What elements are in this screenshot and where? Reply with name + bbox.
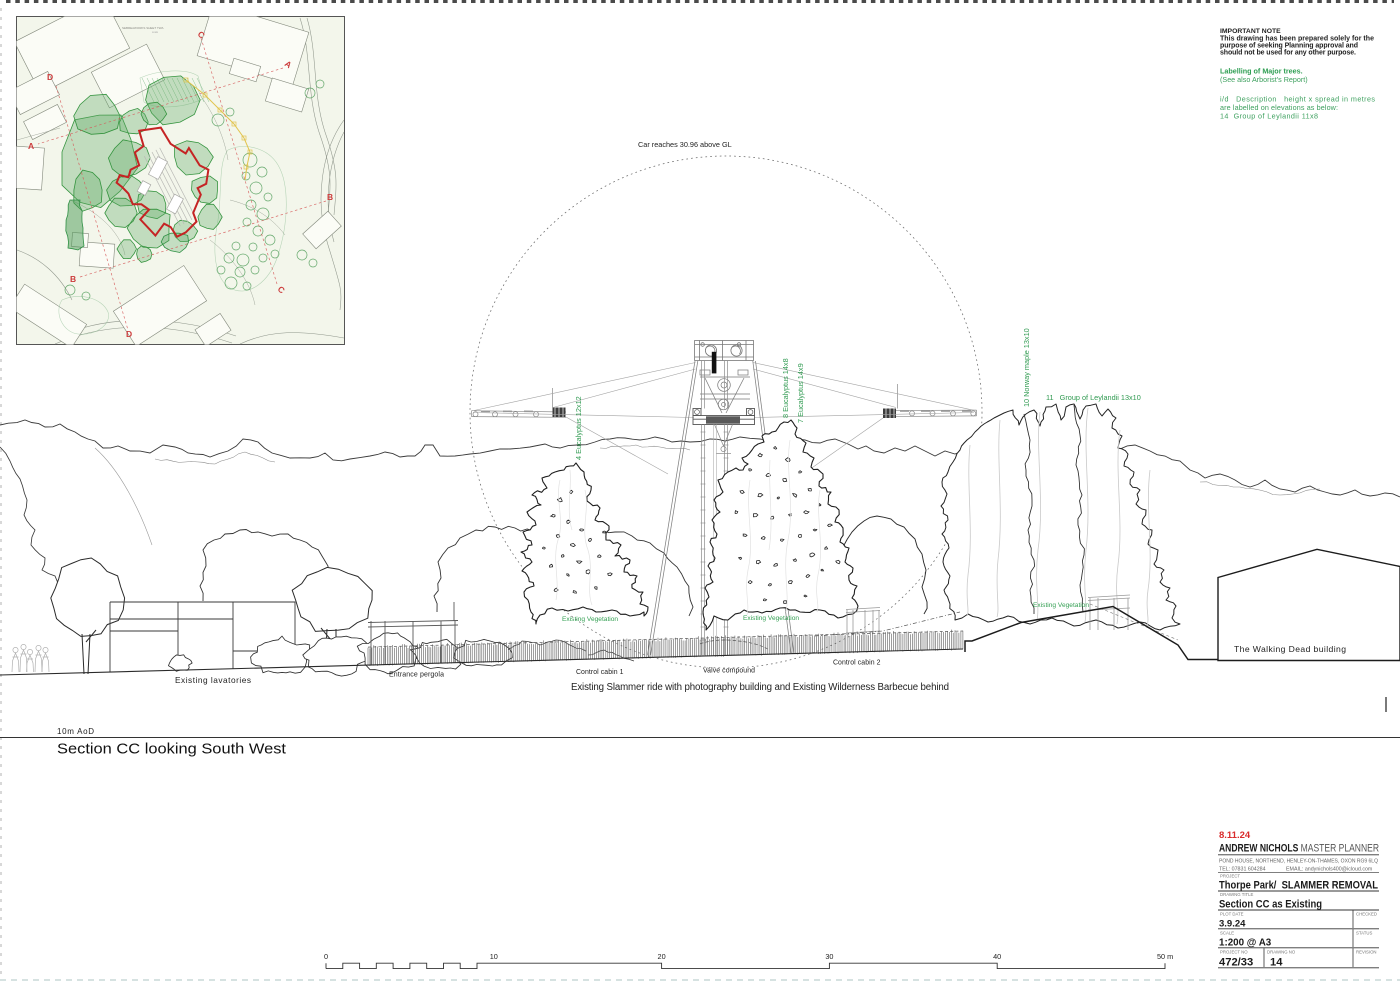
svg-text:20: 20 [658,952,666,961]
svg-text:B: B [327,192,333,202]
svg-text:Existing Vegetation: Existing Vegetation [743,615,799,622]
svg-text:14: 14 [1270,957,1283,969]
svg-text:D: D [126,329,132,339]
svg-text:3.9.24: 3.9.24 [1219,919,1246,930]
svg-text:Control cabin 1: Control cabin 1 [576,669,624,676]
svg-text:purpose of seeking Planning ap: purpose of seeking Planning approval and [1220,42,1358,49]
svg-text:SCALE: SCALE [1220,930,1234,935]
svg-text:SEBREAWORKS SHEET TWA: SEBREAWORKS SHEET TWA [122,26,164,30]
svg-text:PLOT DATE: PLOT DATE [1220,912,1244,917]
svg-text:ANDREW NICHOLS MASTER PLANNER: ANDREW NICHOLS MASTER PLANNER [1219,843,1379,855]
svg-text:10: 10 [490,952,498,961]
svg-text:REVISION: REVISION [1356,949,1377,954]
svg-text:STATUS: STATUS [1356,930,1372,935]
svg-text:A: A [28,141,34,151]
svg-text:30: 30 [825,952,833,961]
svg-text:14 Group of Leylandii 11x8: 14 Group of Leylandii 11x8 [1220,112,1318,121]
svg-text:Section CC as Existing: Section CC as Existing [1219,899,1322,911]
svg-text:This drawing has been prepared: This drawing has been prepared solely fo… [1220,35,1374,42]
svg-text:Section CC looking South West: Section CC looking South West [57,741,287,758]
svg-text:PROJECT NO: PROJECT NO [1220,949,1248,954]
svg-text:D: D [47,72,53,82]
svg-text:Valve compound: Valve compound [703,668,755,675]
svg-text:1:200 @ A3: 1:200 @ A3 [1219,937,1272,948]
svg-text:Existing Vegetation: Existing Vegetation [562,616,618,623]
svg-text:0: 0 [324,952,328,961]
svg-text:DRAWING NO: DRAWING NO [1267,949,1296,954]
svg-text:CHECKED: CHECKED [1356,912,1377,917]
svg-text:PROJECT: PROJECT [1220,874,1240,879]
svg-text:7 Eucalyptus 14x9: 7 Eucalyptus 14x9 [796,363,805,423]
svg-text:8 Eucalyptus 14x8: 8 Eucalyptus 14x8 [781,358,790,418]
svg-text:Entrance pergola: Entrance pergola [389,672,444,679]
svg-text:11 Group of Leylandii 13x10: 11 Group of Leylandii 13x10 [1046,393,1141,402]
svg-text:10m AoD: 10m AoD [57,727,94,736]
svg-text:are labelled on elevations as: are labelled on elevations as below: [1220,103,1338,112]
svg-text:40: 40 [993,952,1001,961]
svg-text:Existing Vegetation: Existing Vegetation [1033,602,1089,609]
svg-text:POND HOUSE, NORTHEND, HENLEY-O: POND HOUSE, NORTHEND, HENLEY-ON-THAMES, … [1219,859,1378,865]
svg-text:EMAIL: andynichols400@icloud.c: EMAIL: andynichols400@icloud.com [1286,867,1373,873]
svg-text:4 Eucalyptus 12x12: 4 Eucalyptus 12x12 [574,396,583,460]
svg-text:50 m: 50 m [1157,952,1173,961]
svg-text:8.11.24: 8.11.24 [1219,830,1251,841]
svg-text:The Walking Dead building: The Walking Dead building [1234,644,1346,654]
svg-text:DRAWING TITLE: DRAWING TITLE [1220,892,1254,897]
svg-text:Thorpe Park/ SLAMMER REMOVAL: Thorpe Park/ SLAMMER REMOVAL [1219,880,1378,892]
svg-text:(See also Arborist's Report): (See also Arborist's Report) [1220,75,1308,84]
svg-text:Existing lavatories: Existing lavatories [175,675,251,685]
svg-text:IMPORTANT NOTE: IMPORTANT NOTE [1220,28,1281,35]
svg-text:Existing Slammer ride with pho: Existing Slammer ride with photography b… [571,682,949,693]
svg-text:Control cabin 2: Control cabin 2 [833,660,881,667]
svg-text:i/d Description height x s: i/d Description height x spread in metre… [1220,94,1375,103]
svg-text:TEL: 07831 604284: TEL: 07831 604284 [1219,867,1266,873]
svg-text:should not be used for any oth: should not be used for any other purpose… [1220,50,1356,57]
svg-text:scale: scale [152,30,159,34]
svg-text:Car reaches 30.96 above GL: Car reaches 30.96 above GL [638,140,732,149]
svg-text:10 Norway maple 13x10: 10 Norway maple 13x10 [1022,328,1031,407]
svg-text:B: B [70,274,76,284]
svg-text:472/33: 472/33 [1219,957,1253,969]
